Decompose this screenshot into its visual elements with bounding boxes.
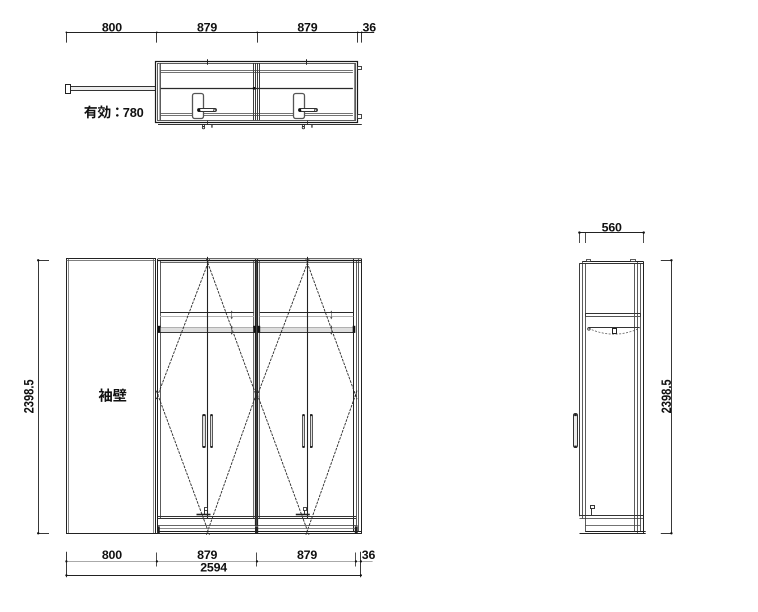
svg-text:36: 36 — [363, 21, 377, 35]
svg-text:36: 36 — [362, 548, 376, 562]
svg-text:879: 879 — [297, 21, 317, 35]
svg-text:879: 879 — [297, 548, 317, 562]
svg-text:879: 879 — [197, 21, 217, 35]
svg-text:780: 780 — [123, 105, 144, 120]
svg-text:560: 560 — [602, 221, 622, 235]
svg-text:2594: 2594 — [200, 561, 227, 575]
svg-text:2398.5: 2398.5 — [21, 379, 37, 413]
svg-text:800: 800 — [102, 21, 122, 35]
svg-text:800: 800 — [102, 548, 122, 562]
svg-text:2398.5: 2398.5 — [659, 379, 675, 413]
